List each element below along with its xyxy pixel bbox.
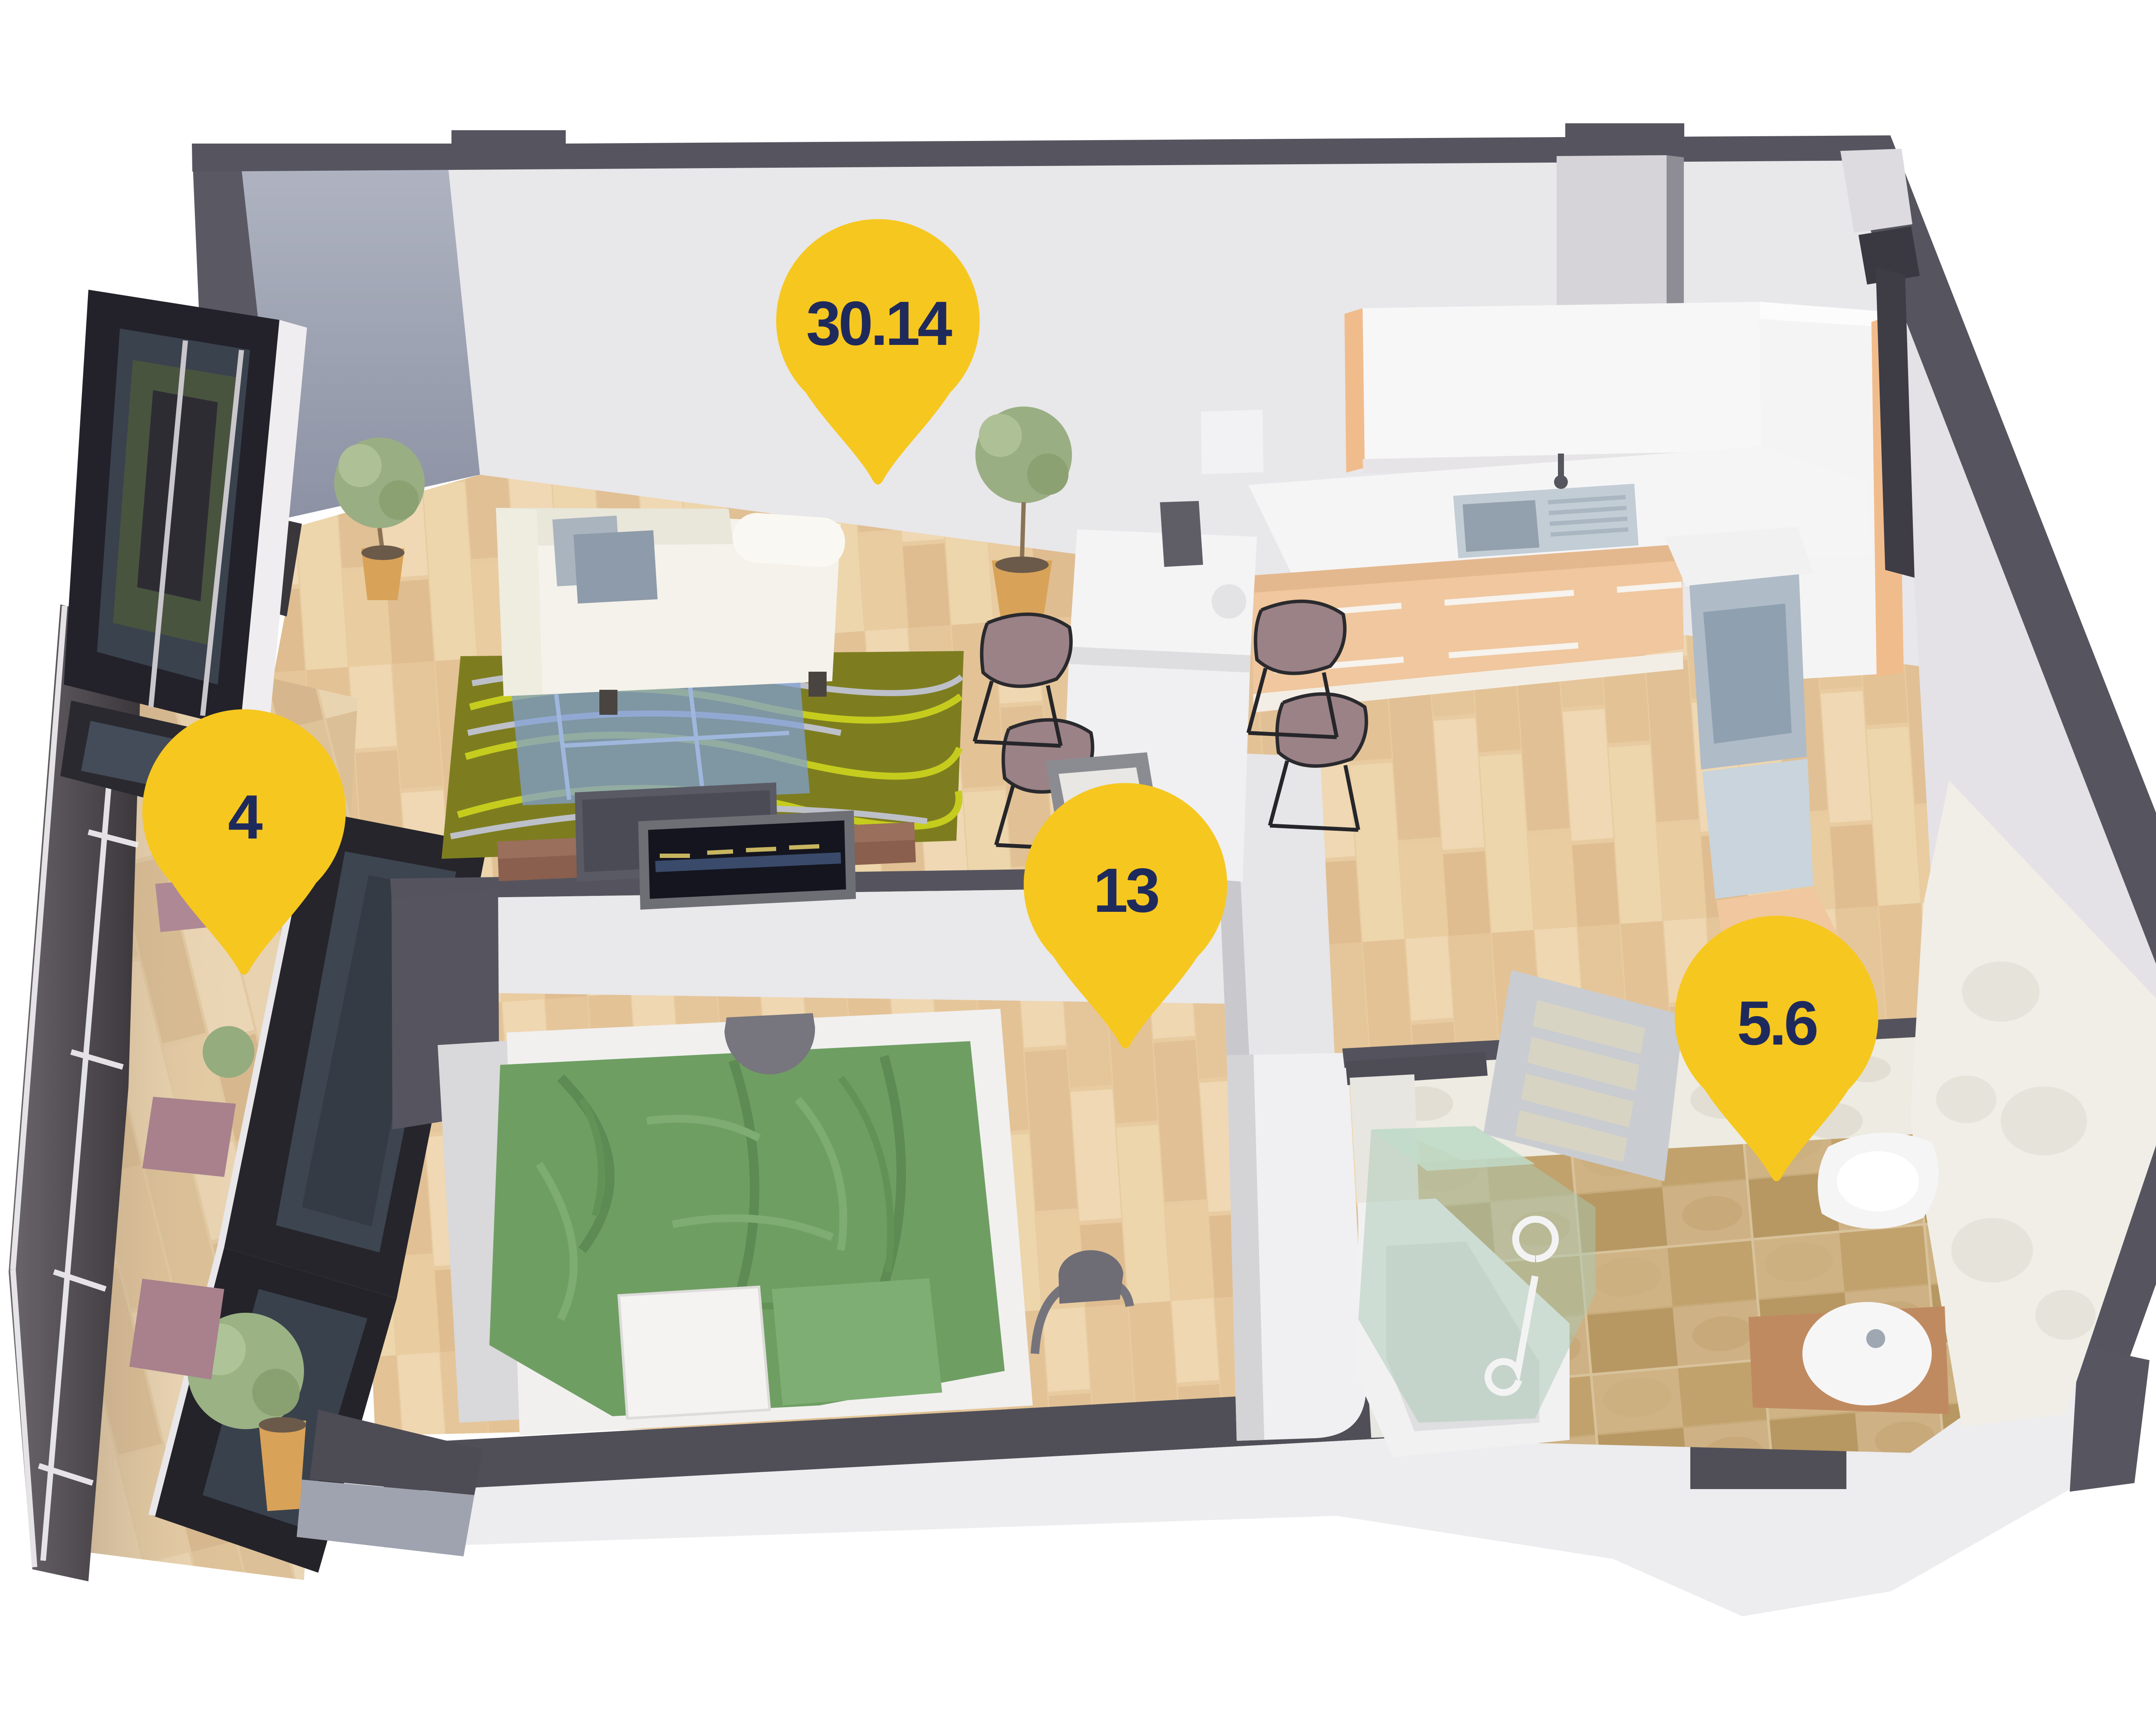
svg-text:4: 4	[228, 782, 263, 852]
svg-text:13: 13	[1093, 855, 1158, 925]
svg-text:30.14: 30.14	[806, 288, 952, 358]
svg-text:5.6: 5.6	[1737, 988, 1817, 1058]
